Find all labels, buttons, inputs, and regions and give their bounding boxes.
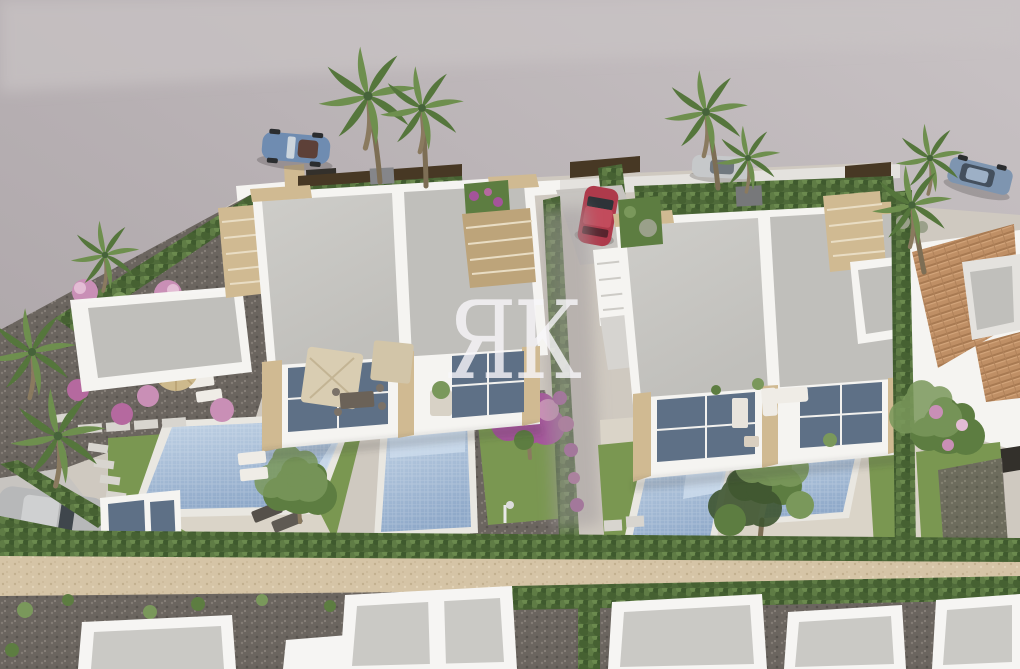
watermark: ЯК	[445, 278, 581, 404]
rooftop-ac-unit	[735, 185, 762, 206]
roof-panel	[262, 193, 400, 366]
bottom-band	[0, 530, 1020, 669]
dining-set	[339, 391, 374, 409]
row-house	[784, 605, 906, 669]
hedge-column	[578, 602, 600, 669]
parasol	[370, 340, 414, 384]
row-house	[932, 594, 1020, 669]
pouf	[744, 436, 759, 447]
sofa	[761, 387, 778, 416]
right-villa	[593, 185, 920, 491]
row-house	[608, 594, 767, 669]
watermark-text: ЯК	[445, 278, 581, 404]
window	[800, 382, 882, 448]
table	[732, 398, 748, 428]
roof-garden-bed	[618, 196, 663, 248]
row-house	[78, 615, 236, 669]
render-image: ЯК	[0, 0, 1020, 669]
sandstone-stairs-right	[462, 208, 536, 288]
